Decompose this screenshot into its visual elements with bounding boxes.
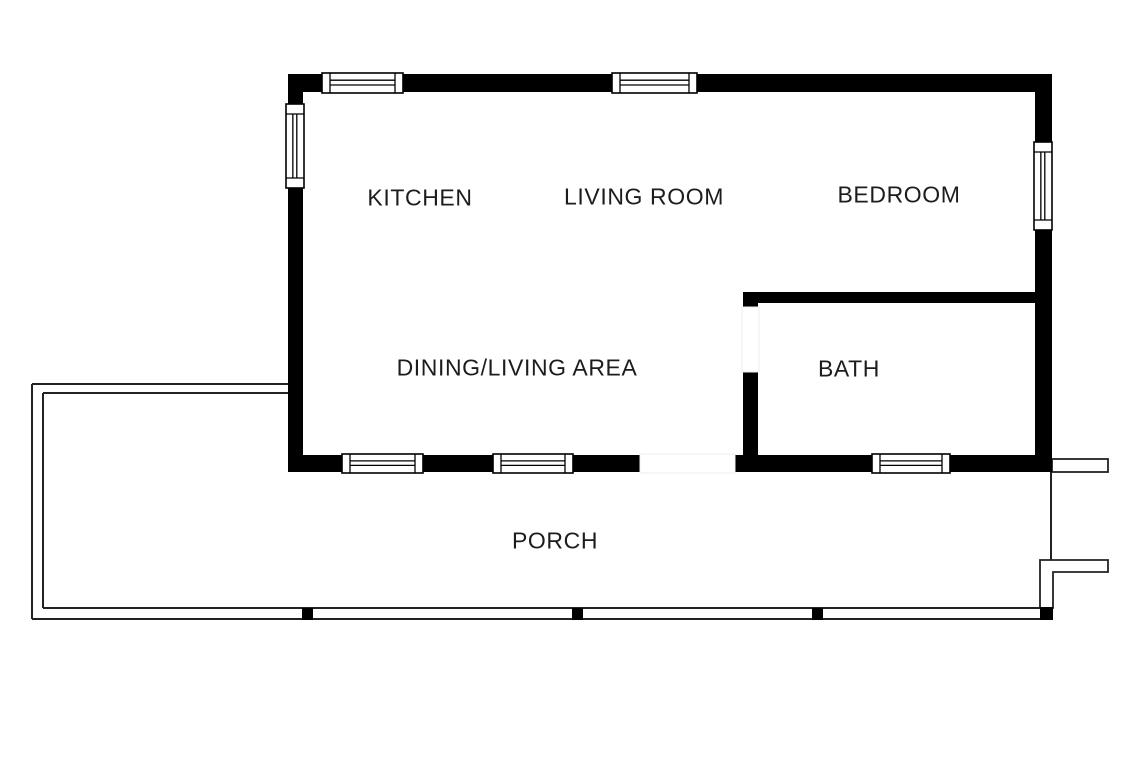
room-label-kitchen: KITCHEN (367, 185, 472, 212)
window-bottom-bath (872, 454, 950, 473)
window-bottom-dining-1 (342, 454, 423, 473)
room-label-dining-living-area: DINING/LIVING AREA (397, 355, 638, 382)
window-bottom-dining-2 (493, 454, 573, 473)
porch-door-opening (640, 454, 735, 473)
exterior-wall-right (1035, 74, 1052, 472)
side-step-upper (1052, 459, 1108, 472)
porch-post-2 (572, 608, 583, 620)
room-label-bath: BATH (818, 356, 880, 383)
bath-wall-top (743, 292, 1035, 303)
floor-plan: KITCHENLIVING ROOMBEDROOMDINING/LIVING A… (0, 0, 1140, 760)
side-step-lower (1040, 560, 1108, 608)
porch-post-corner (1040, 607, 1053, 620)
porch-post-1 (302, 608, 313, 620)
window-left-kitchen (286, 104, 304, 188)
window-right-bedroom (1034, 142, 1052, 230)
porch-post-3 (812, 608, 823, 620)
window-top-living (612, 73, 697, 93)
bath-door-opening (742, 307, 759, 372)
room-label-living-room: LIVING ROOM (564, 184, 724, 211)
window-top-kitchen (322, 73, 403, 93)
room-label-bedroom: BEDROOM (837, 182, 960, 209)
room-label-porch: PORCH (512, 528, 598, 555)
